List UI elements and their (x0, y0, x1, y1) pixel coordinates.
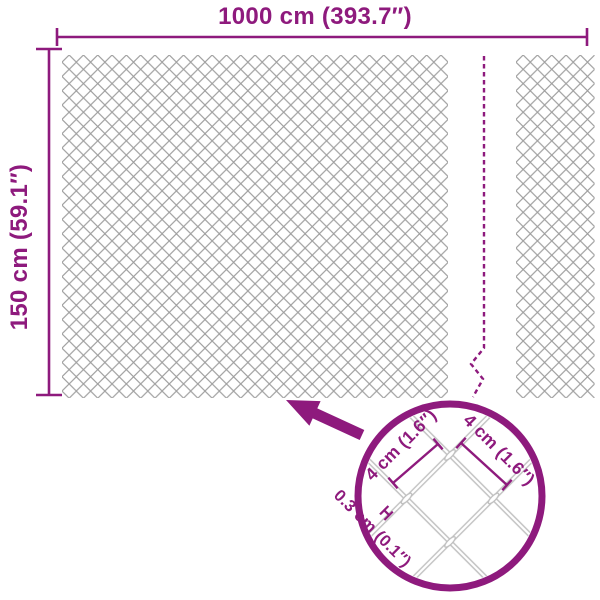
height-dimension-line (36, 49, 62, 395)
detail-circle (352, 398, 548, 594)
right-mesh-panel (516, 55, 595, 398)
diagram-canvas: 1000 cm (393.7″) 150 cm (59.1″) 4 cm (1.… (0, 0, 600, 600)
diagram-graphics (0, 0, 600, 600)
height-dimension-label: 150 cm (59.1″) (6, 164, 34, 330)
detail-mesh (352, 398, 548, 594)
width-dimension-label: 1000 cm (393.7″) (218, 3, 412, 31)
zoom-arrow-icon (286, 400, 364, 440)
main-mesh-panel (62, 55, 448, 398)
break-line (471, 56, 484, 397)
